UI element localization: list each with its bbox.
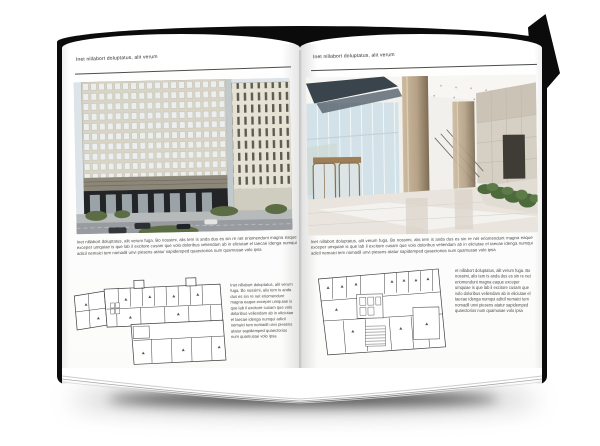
right-floor-plan-drawing [305, 262, 452, 362]
right-page-header-rule [311, 64, 537, 71]
lobby-interior-photo [306, 74, 538, 235]
right-floor-plan [305, 262, 452, 367]
page-bottom-curl [56, 368, 548, 414]
lobby-interior-illustration [306, 74, 538, 235]
right-page-header: Inet nillabort doluptatus, alit verum [313, 50, 477, 66]
right-plan-caption: et nillabort doluptatus, alit verum fuga… [455, 268, 535, 360]
left-floor-plan [71, 276, 229, 375]
book-mockup-scene: Inet nillabort doluptatus, alit verum [0, 0, 600, 446]
left-page-body-text: Inet nillabort doluptatus, alit verum fu… [77, 235, 298, 274]
spine-line [299, 50, 302, 388]
left-floor-plan-drawing [71, 276, 229, 370]
left-page-header: Inet nillabort doluptatus, alit verum [76, 51, 240, 68]
left-page-header-rule [75, 66, 291, 74]
left-page-outer-shade [62, 42, 70, 384]
building-exterior-illustration [73, 78, 292, 234]
right-page: Inet nillabort doluptatus, alit verum [300, 34, 542, 384]
building-exterior-photo [73, 78, 292, 234]
left-page: Inet nillabort doluptatus, alit verum [62, 34, 300, 384]
